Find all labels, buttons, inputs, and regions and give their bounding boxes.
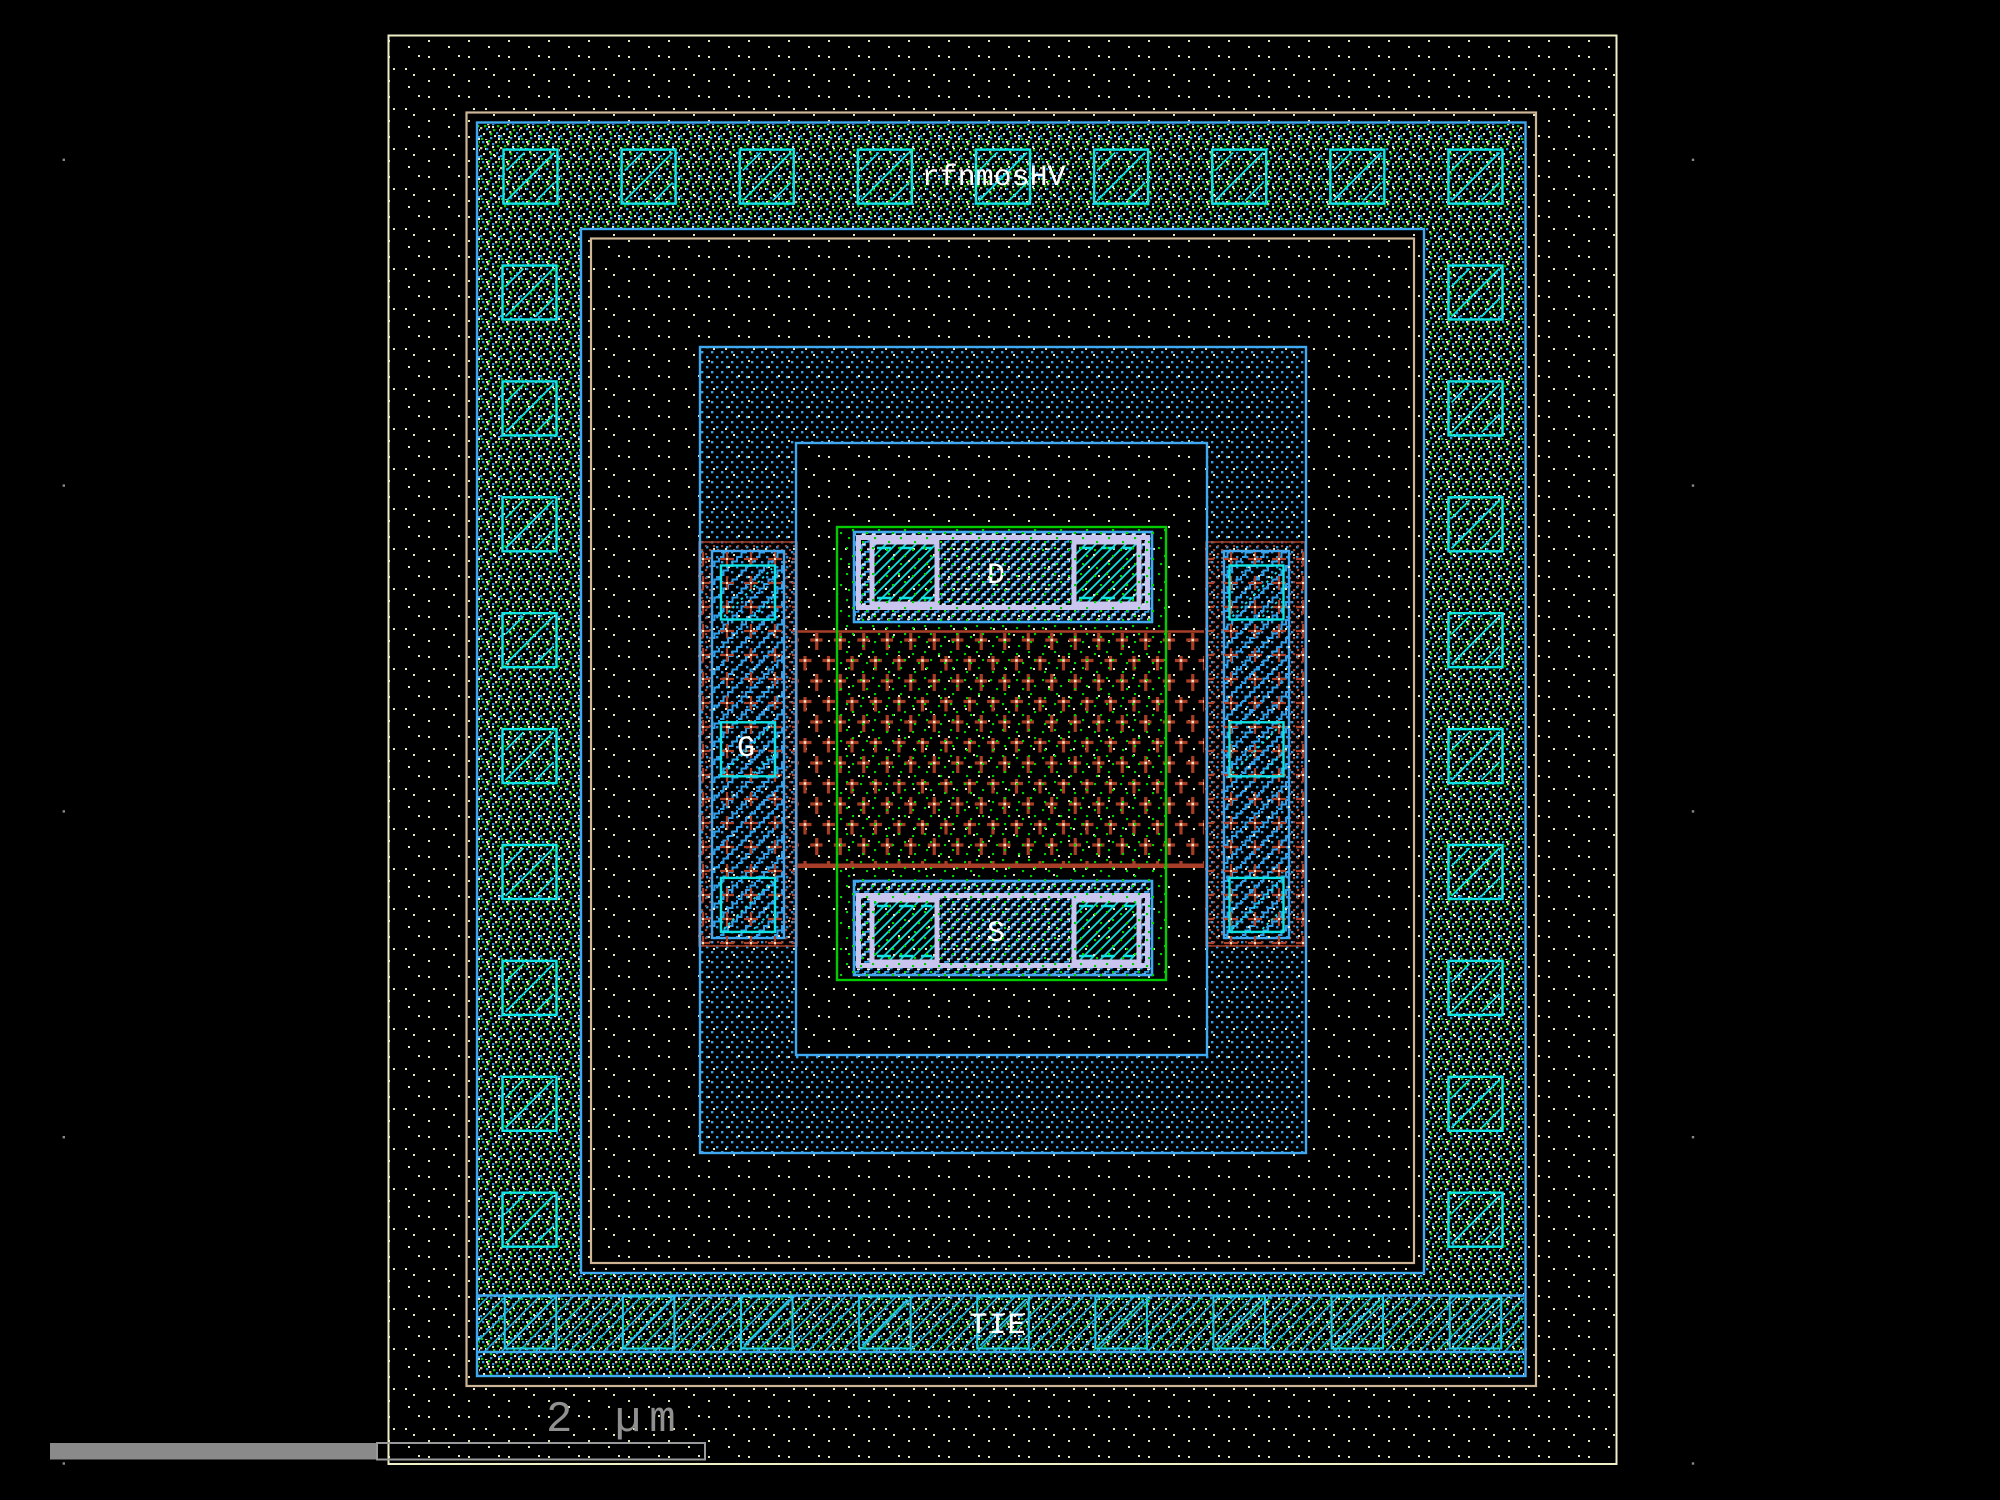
svg-text:rfnmosHV: rfnmosHV [922,161,1066,195]
svg-text:2 µm: 2 µm [546,1395,684,1445]
svg-text:TIE: TIE [969,1309,1026,1343]
svg-text:G: G [737,732,755,766]
